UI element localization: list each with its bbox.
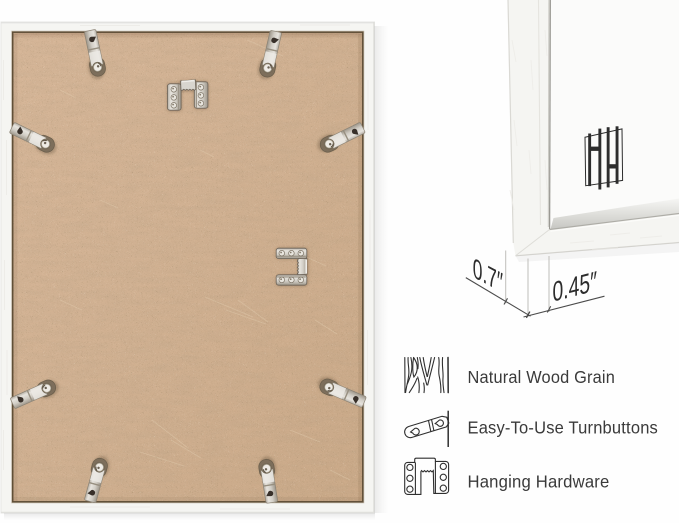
svg-text:Hanging Hardware: Hanging Hardware [468,472,610,492]
svg-text:Natural Wood Grain: Natural Wood Grain [468,367,616,387]
svg-text:Easy-To-Use Turnbuttons: Easy-To-Use Turnbuttons [468,418,659,438]
